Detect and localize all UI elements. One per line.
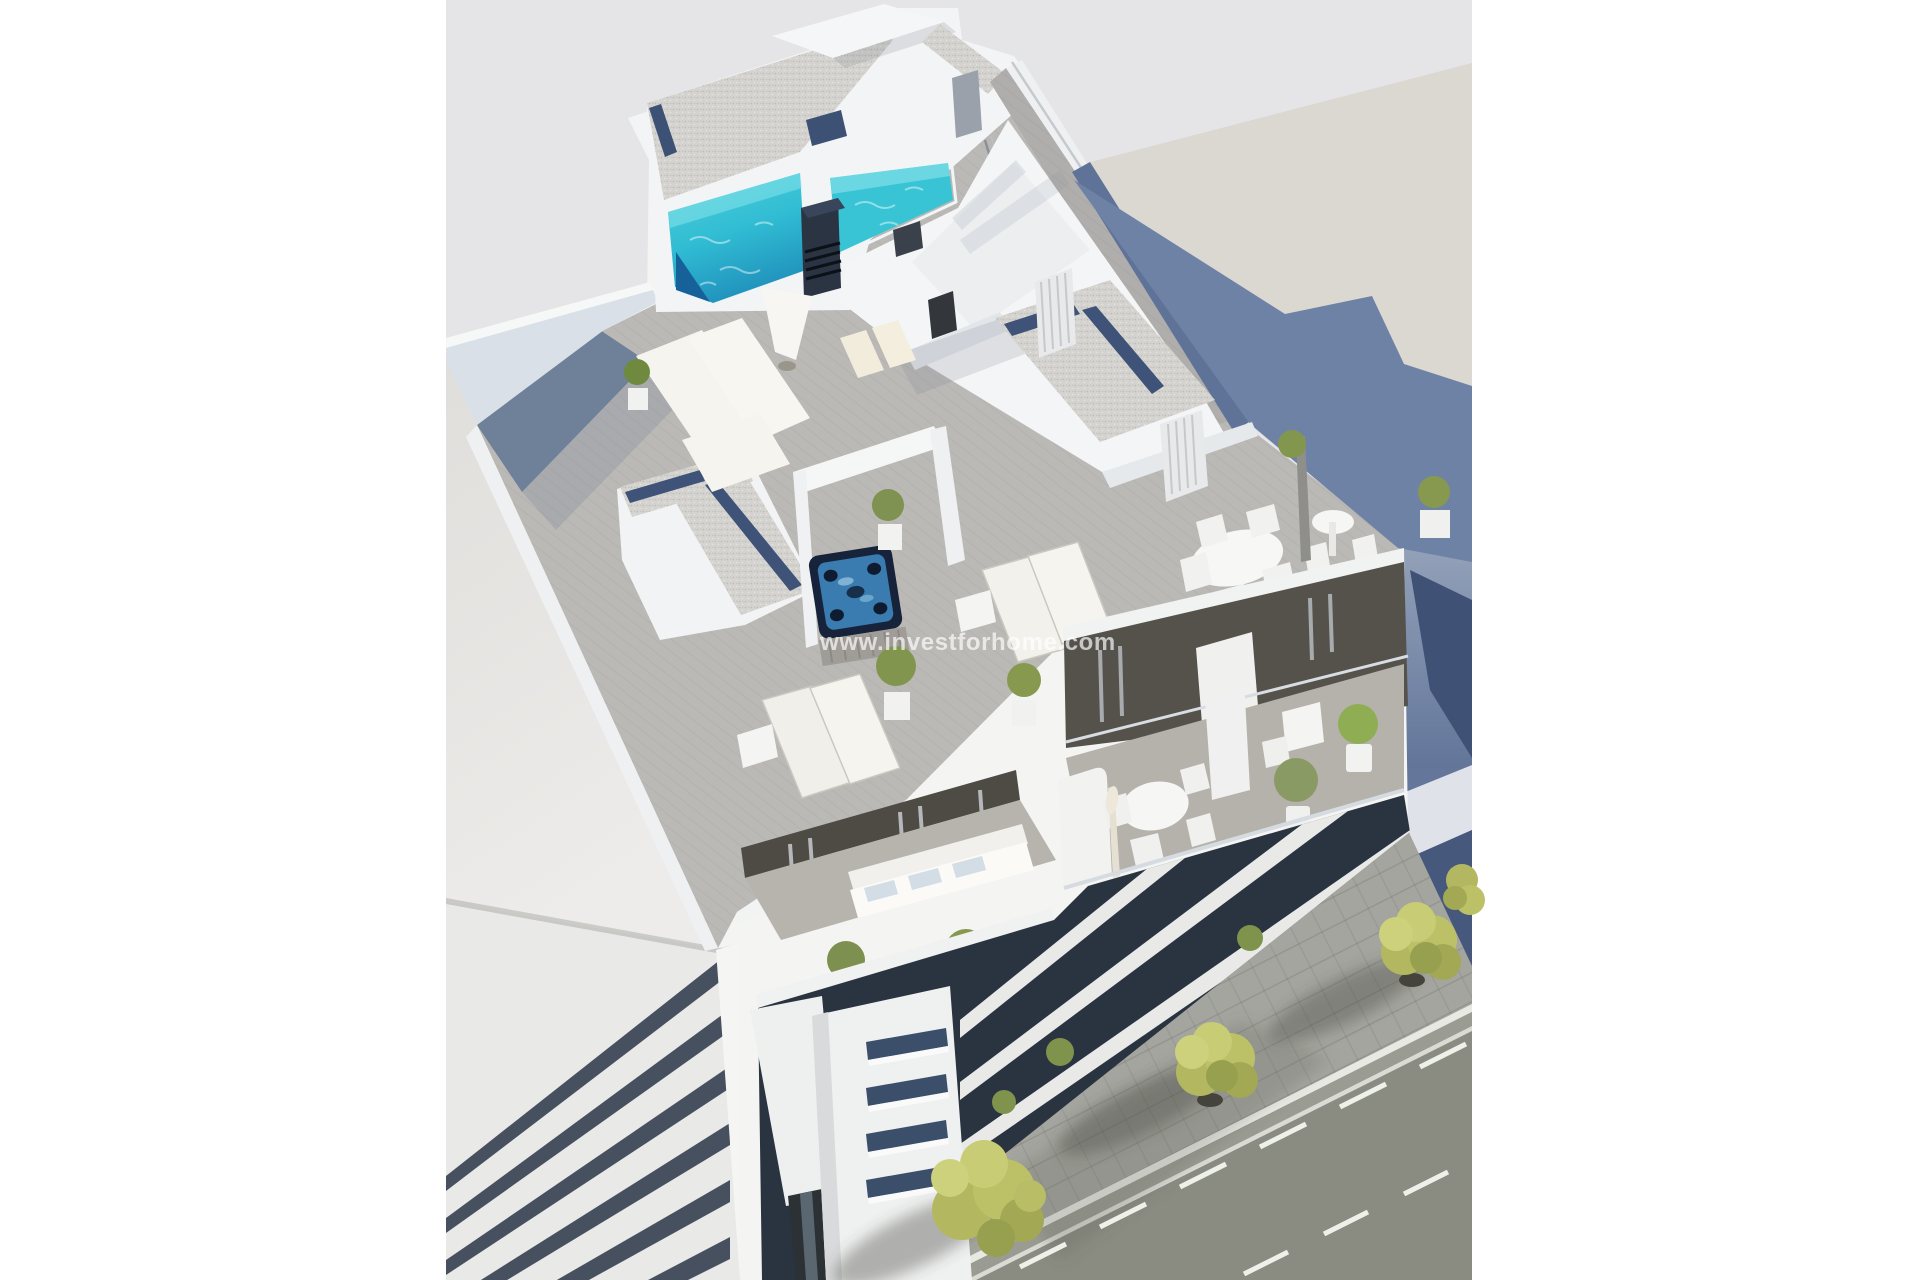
svg-text:www.investforhome.com: www.investforhome.com [819,629,1116,656]
